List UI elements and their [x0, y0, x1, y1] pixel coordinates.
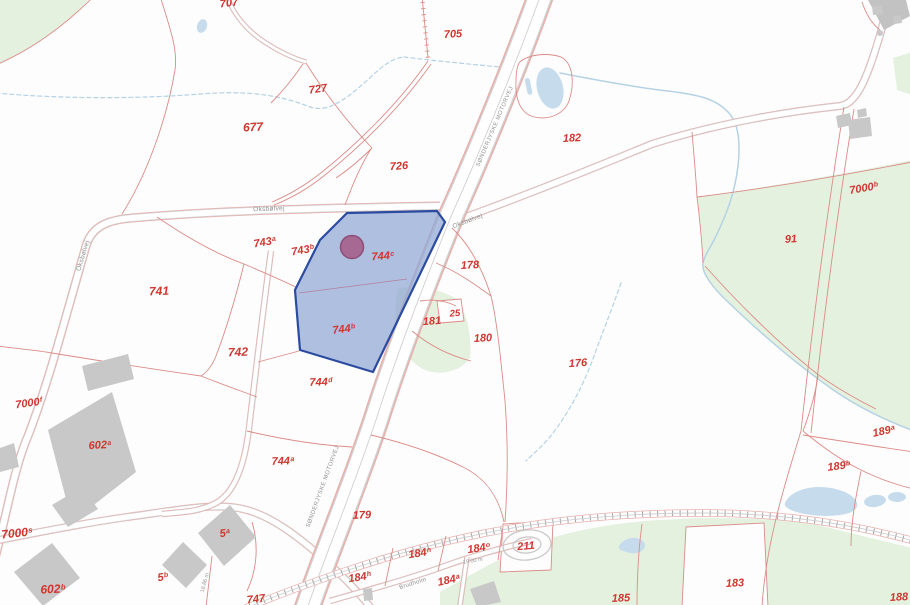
map-marker-icon[interactable]	[341, 236, 364, 259]
pond	[532, 64, 567, 111]
map-canvas[interactable]: 7077057276777261827000b91743a743b744c178…	[0, 0, 910, 605]
map-graphics	[0, 0, 910, 605]
